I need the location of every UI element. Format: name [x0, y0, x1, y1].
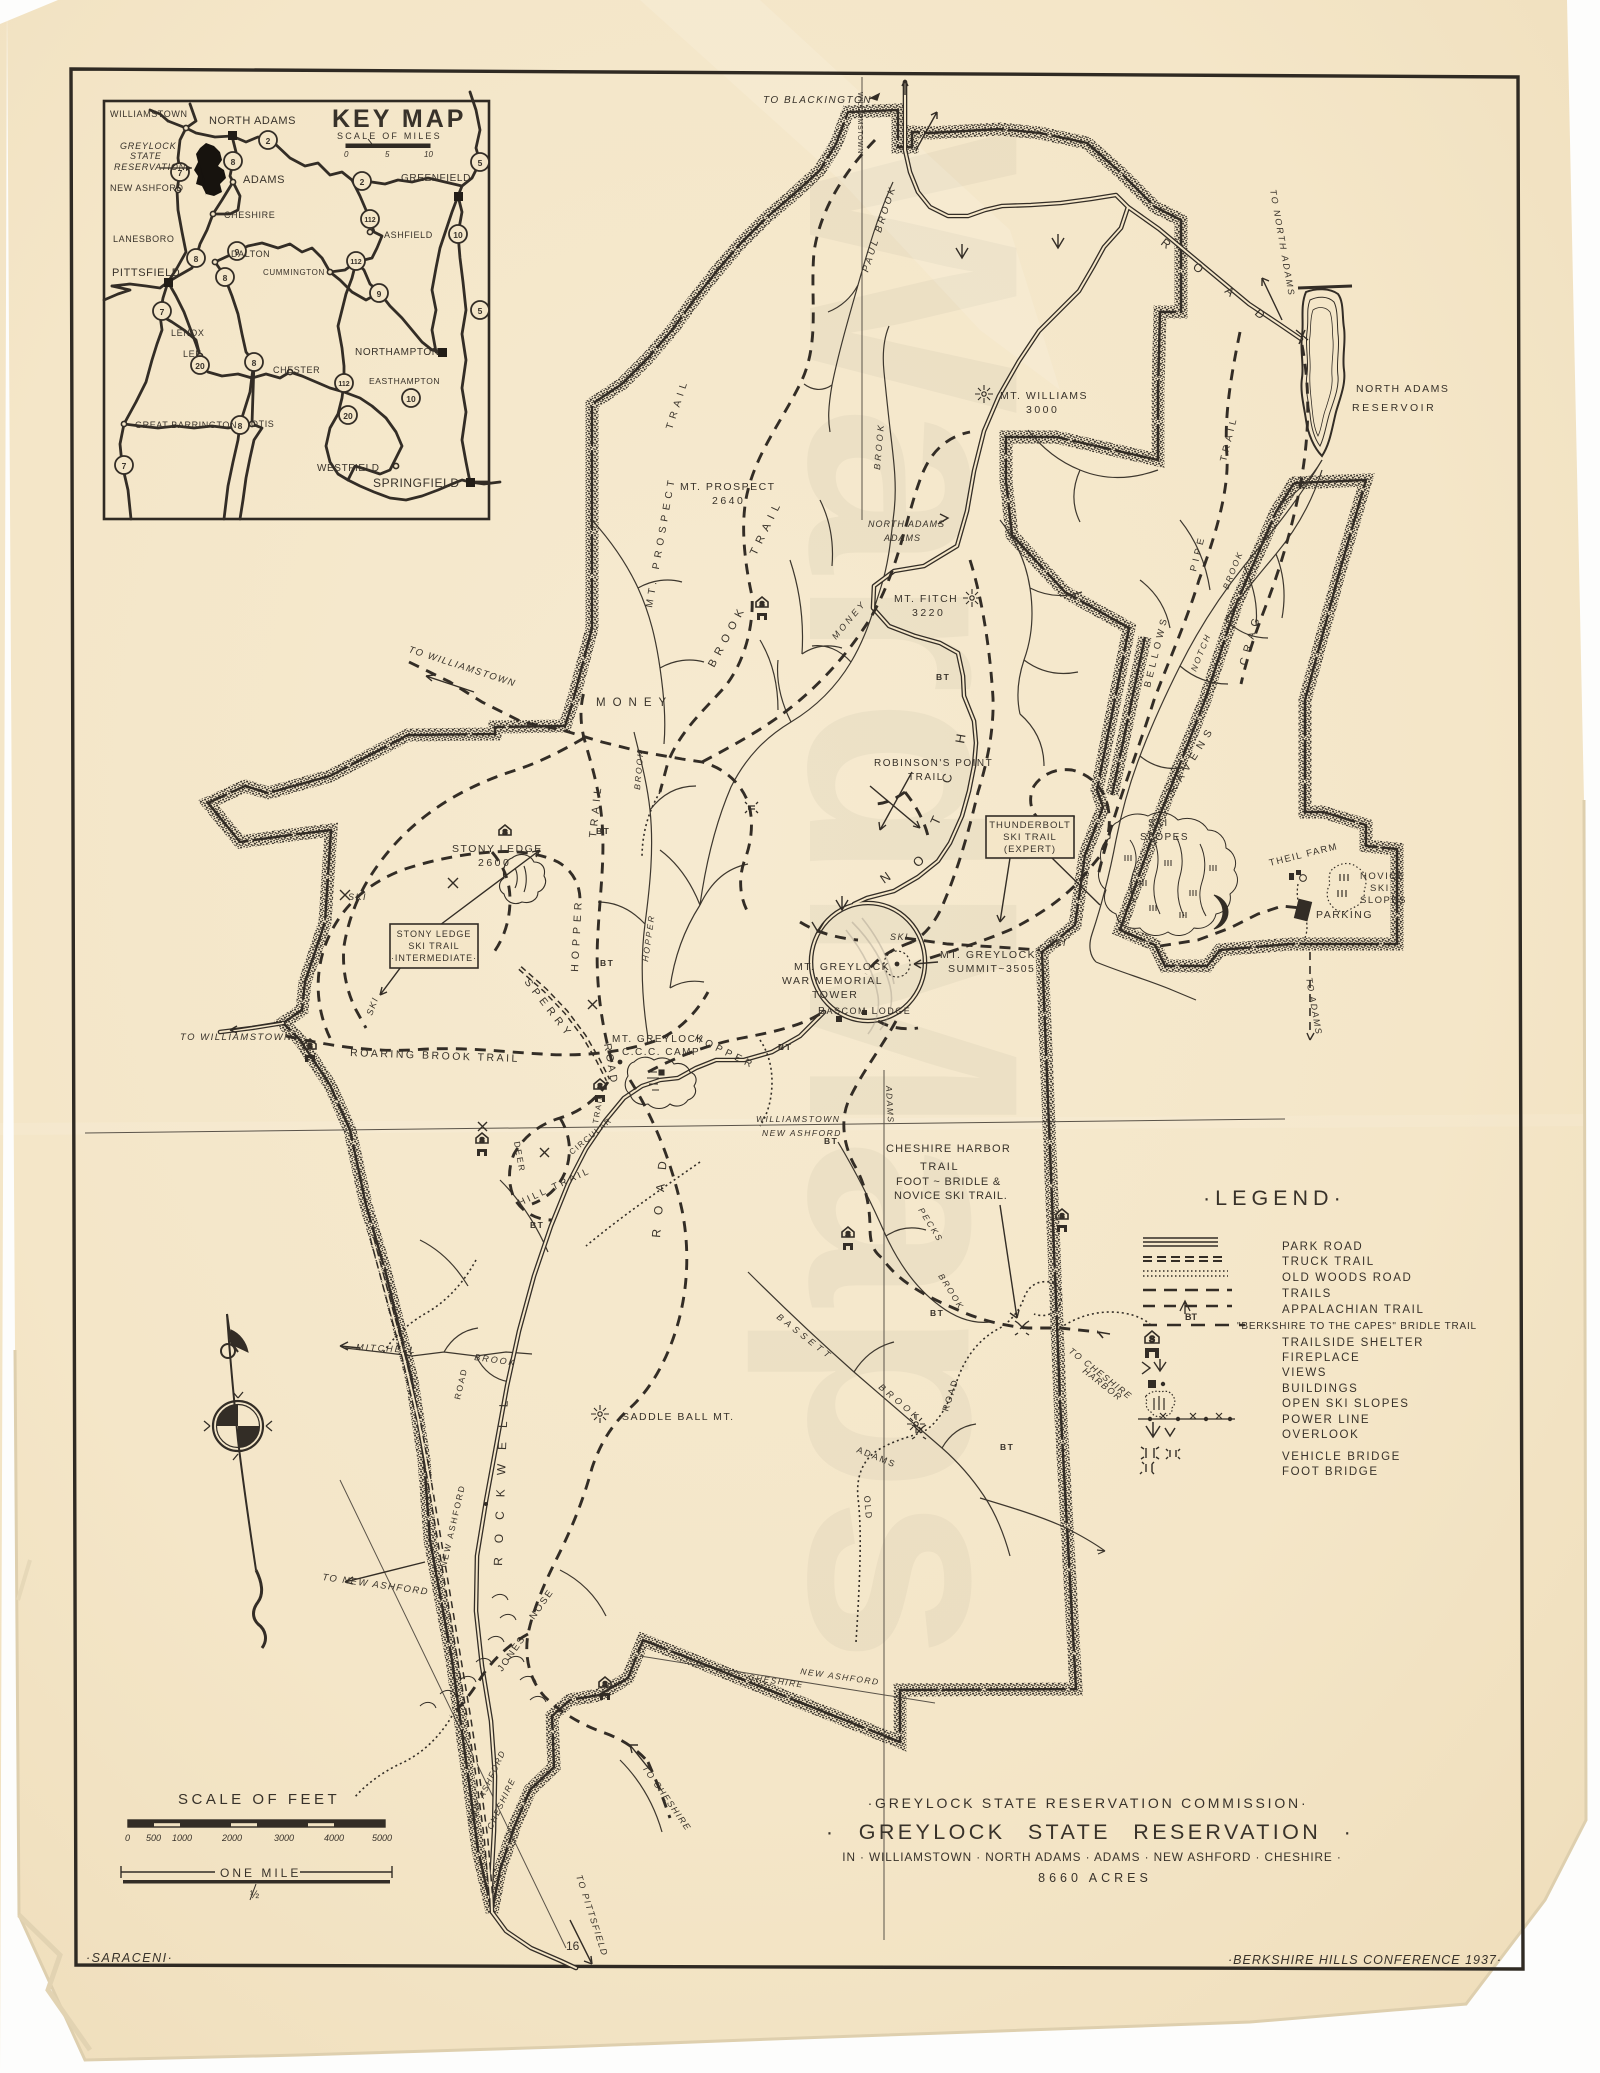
- svg-text:GREAT BARRINGTON: GREAT BARRINGTON: [135, 420, 237, 430]
- svg-text:S: S: [760, 602, 765, 609]
- svg-text:·BERKSHIRE HILLS CONFERENCE 19: ·BERKSHIRE HILLS CONFERENCE 1937·: [1228, 1953, 1502, 1967]
- svg-text:ADAMS: ADAMS: [883, 533, 921, 543]
- svg-text:S: S: [1149, 1335, 1154, 1344]
- svg-text:S: S: [603, 1682, 608, 1689]
- svg-text:PITTSFIELD: PITTSFIELD: [112, 267, 180, 279]
- svg-text:SPRINGFIELD: SPRINGFIELD: [373, 476, 460, 490]
- svg-text:THUNDERBOLT: THUNDERBOLT: [989, 820, 1071, 831]
- svg-text:POWER LINE: POWER LINE: [1282, 1414, 1370, 1426]
- svg-text:4000: 4000: [324, 1833, 344, 1843]
- svg-text:1000: 1000: [172, 1833, 192, 1843]
- svg-text:EASTHAMPTON: EASTHAMPTON: [369, 376, 440, 386]
- svg-text:NORTHAMPTON: NORTHAMPTON: [355, 347, 440, 358]
- svg-text:NORTH ADAMS: NORTH ADAMS: [1356, 383, 1449, 395]
- svg-text:SCALE OF MILES: SCALE OF MILES: [337, 131, 442, 141]
- svg-text:TRUCK TRAIL: TRUCK TRAIL: [1282, 1256, 1375, 1268]
- svg-text:MT. FITCH: MT. FITCH: [894, 593, 958, 605]
- svg-text:SADDLE BALL MT.: SADDLE BALL MT.: [622, 1411, 735, 1423]
- svg-text:ASHFIELD: ASHFIELD: [384, 230, 433, 240]
- svg-text:TO BLACKINGTON: TO BLACKINGTON: [763, 95, 872, 106]
- svg-text:SKI: SKI: [1148, 818, 1169, 829]
- svg-text:3000: 3000: [274, 1833, 294, 1843]
- svg-text:BT: BT: [530, 1220, 544, 1230]
- svg-text:8: 8: [238, 421, 243, 431]
- svg-text:STONY LEDGE: STONY LEDGE: [452, 843, 543, 855]
- svg-text:500: 500: [146, 1833, 161, 1843]
- svg-text:MT. WILLIAMS: MT. WILLIAMS: [1000, 390, 1088, 402]
- svg-text:8: 8: [231, 157, 236, 167]
- svg-text:"BERKSHIRE TO THE CAPES" BRIDL: "BERKSHIRE TO THE CAPES" BRIDLE TRAIL: [1237, 1321, 1477, 1332]
- svg-text:S: S: [1060, 1214, 1065, 1221]
- svg-text:ADAMS: ADAMS: [884, 1085, 896, 1124]
- svg-text:VIEWS: VIEWS: [1282, 1367, 1327, 1379]
- svg-text:TRAIL: TRAIL: [920, 1161, 959, 1173]
- svg-text:RESERVATION: RESERVATION: [114, 162, 186, 172]
- svg-text:WILLIAMSTOWN: WILLIAMSTOWN: [110, 109, 188, 119]
- svg-text:NORTH ADAMS: NORTH ADAMS: [868, 519, 945, 529]
- svg-text:2: 2: [360, 177, 365, 187]
- svg-text:MONEY: MONEY: [596, 697, 673, 709]
- svg-text:C.C.C. CAMP: C.C.C. CAMP: [622, 1047, 700, 1058]
- svg-text:IN · WILLIAMSTOWN · NORTH ADAM: IN · WILLIAMSTOWN · NORTH ADAMS · ADAMS …: [842, 1850, 1341, 1864]
- svg-text:112: 112: [350, 259, 361, 266]
- svg-text:BT: BT: [596, 826, 610, 836]
- svg-text:CHESTER: CHESTER: [273, 365, 320, 375]
- svg-text:STONY LEDGE: STONY LEDGE: [397, 929, 472, 939]
- svg-text:2600: 2600: [478, 857, 511, 869]
- svg-text:TOWER: TOWER: [812, 989, 858, 1001]
- svg-text:BUILDINGS: BUILDINGS: [1282, 1383, 1358, 1395]
- svg-text:8: 8: [194, 254, 199, 264]
- svg-text:OTIS: OTIS: [251, 419, 274, 429]
- svg-text:NEW ASHFORD: NEW ASHFORD: [110, 183, 184, 193]
- svg-text:9: 9: [377, 289, 382, 299]
- svg-text:8: 8: [252, 358, 257, 368]
- svg-text:MT. PROSPECT: MT. PROSPECT: [680, 481, 776, 493]
- svg-text:BT: BT: [824, 1136, 838, 1146]
- svg-text:TRAILSIDE SHELTER: TRAILSIDE SHELTER: [1282, 1337, 1424, 1349]
- svg-text:5: 5: [478, 158, 483, 168]
- svg-text:S: S: [308, 1044, 313, 1051]
- svg-text:5: 5: [478, 306, 483, 316]
- svg-text:PARKING: PARKING: [1316, 909, 1373, 921]
- svg-text:SKI TRAIL: SKI TRAIL: [1003, 832, 1057, 843]
- svg-text:SCALE OF FEET: SCALE OF FEET: [178, 1791, 340, 1808]
- svg-text:OLD WOODS ROAD: OLD WOODS ROAD: [1282, 1272, 1412, 1284]
- svg-text:·INTERMEDIATE·: ·INTERMEDIATE·: [391, 953, 477, 963]
- svg-text:LENOX: LENOX: [171, 328, 205, 338]
- svg-text:TRAILS: TRAILS: [1282, 1288, 1332, 1300]
- svg-text:WILLIAMSTOWN: WILLIAMSTOWN: [756, 1114, 840, 1124]
- svg-text:·GREYLOCK STATE RESERVATION CO: ·GREYLOCK STATE RESERVATION COMMISSION·: [868, 1795, 1309, 1811]
- svg-text:SLOPES: SLOPES: [1360, 895, 1407, 906]
- svg-text:ROBINSON'S POINT: ROBINSON'S POINT: [874, 758, 993, 769]
- svg-text:112: 112: [338, 381, 349, 388]
- svg-text:APPALACHIAN TRAIL: APPALACHIAN TRAIL: [1282, 1304, 1424, 1316]
- svg-text:OVERLOOK: OVERLOOK: [1282, 1429, 1359, 1441]
- svg-text:NORTH ADAMS: NORTH ADAMS: [209, 115, 296, 127]
- svg-text:OPEN SKI SLOPES: OPEN SKI SLOPES: [1282, 1398, 1410, 1410]
- svg-text:BT: BT: [778, 1042, 792, 1052]
- svg-text:GREENFIELD: GREENFIELD: [401, 173, 471, 184]
- svg-text:FOOT BRIDGE: FOOT BRIDGE: [1282, 1466, 1379, 1478]
- svg-text:BT: BT: [930, 1308, 944, 1318]
- svg-text:KEY MAP: KEY MAP: [332, 105, 466, 133]
- svg-text:8660 ACRES: 8660 ACRES: [1038, 1871, 1152, 1885]
- svg-text:BT: BT: [600, 958, 614, 968]
- svg-text:S: S: [480, 1138, 485, 1145]
- svg-text:10: 10: [406, 394, 416, 404]
- svg-text:NOVICE SKI TRAIL.: NOVICE SKI TRAIL.: [894, 1190, 1008, 1202]
- svg-text:20: 20: [343, 411, 353, 421]
- svg-text:DALTON: DALTON: [231, 249, 270, 259]
- svg-text:2000: 2000: [221, 1833, 242, 1843]
- svg-text:PARK ROAD: PARK ROAD: [1282, 1241, 1363, 1253]
- svg-text:SKI: SKI: [890, 932, 909, 942]
- svg-text:ADAMS: ADAMS: [243, 174, 285, 186]
- svg-text:SKI: SKI: [348, 892, 367, 902]
- svg-text:WAR MEMORIAL: WAR MEMORIAL: [782, 975, 883, 987]
- svg-text:· GREYLOCK STATE RESERVATION ·: · GREYLOCK STATE RESERVATION ·: [826, 1820, 1354, 1844]
- svg-text:5000: 5000: [372, 1833, 392, 1843]
- svg-text:WESTFIELD: WESTFIELD: [317, 463, 380, 474]
- svg-text:16: 16: [566, 1939, 580, 1953]
- svg-text:20: 20: [195, 361, 205, 371]
- svg-text:MT. GREYLOCK: MT. GREYLOCK: [940, 949, 1036, 961]
- svg-text:SUMMIT~3505: SUMMIT~3505: [948, 963, 1035, 975]
- svg-text:BASCOM LODGE: BASCOM LODGE: [818, 1005, 911, 1017]
- svg-text:BT: BT: [936, 672, 950, 682]
- svg-text:FOOT ~ BRIDLE &: FOOT ~ BRIDLE &: [896, 1176, 1001, 1188]
- svg-text:0: 0: [125, 1833, 130, 1843]
- svg-text:7: 7: [122, 461, 127, 471]
- svg-text:SKI: SKI: [1370, 883, 1390, 894]
- svg-text:CHESHIRE HARBOR: CHESHIRE HARBOR: [886, 1143, 1011, 1155]
- svg-text:LANESBORO: LANESBORO: [113, 234, 174, 244]
- svg-text:TO WILLIAMSTOWN: TO WILLIAMSTOWN: [180, 1032, 292, 1043]
- svg-text:MT. GREYLOCK: MT. GREYLOCK: [794, 961, 890, 973]
- svg-text:5: 5: [385, 150, 390, 159]
- svg-text:10: 10: [453, 230, 463, 240]
- svg-text:3220: 3220: [912, 607, 945, 619]
- svg-text:2640: 2640: [712, 495, 745, 507]
- svg-text:NOVICE: NOVICE: [1360, 871, 1405, 882]
- svg-text:RESERVOIR: RESERVOIR: [1352, 402, 1436, 414]
- svg-text:3000: 3000: [1026, 404, 1059, 416]
- svg-text:CUMMINGTON: CUMMINGTON: [263, 268, 325, 277]
- svg-text:VEHICLE BRIDGE: VEHICLE BRIDGE: [1282, 1451, 1401, 1463]
- svg-text:BT: BT: [1185, 1312, 1197, 1322]
- svg-text:MT. GREYLOCK: MT. GREYLOCK: [612, 1034, 704, 1045]
- svg-text:STATE: STATE: [130, 151, 162, 161]
- svg-text:S: S: [598, 1084, 603, 1091]
- svg-text:S: S: [846, 1232, 851, 1239]
- svg-text:S: S: [503, 830, 508, 837]
- svg-text:0: 0: [344, 150, 349, 159]
- svg-text:LEE: LEE: [183, 349, 202, 359]
- svg-text:7: 7: [160, 307, 165, 317]
- svg-text:SKI TRAIL: SKI TRAIL: [408, 941, 459, 951]
- svg-text:ONE MILE: ONE MILE: [220, 1866, 301, 1880]
- svg-text:BT: BT: [1000, 1442, 1014, 1452]
- svg-text:2: 2: [266, 136, 271, 146]
- svg-text:·SARACENI·: ·SARACENI·: [86, 1951, 173, 1965]
- svg-text:GREYLOCK: GREYLOCK: [120, 141, 177, 151]
- svg-text:WILLIAMSTOWN: WILLIAMSTOWN: [856, 92, 863, 154]
- svg-text:(EXPERT): (EXPERT): [1004, 844, 1056, 855]
- svg-text:·LEGEND·: ·LEGEND·: [1203, 1186, 1346, 1210]
- svg-text:112: 112: [364, 217, 375, 224]
- svg-text:10: 10: [424, 150, 433, 159]
- svg-text:8: 8: [223, 273, 228, 283]
- svg-text:SKI: SKI: [1048, 938, 1067, 948]
- svg-text:OLD: OLD: [862, 1495, 874, 1520]
- svg-text:CHESHIRE: CHESHIRE: [224, 210, 275, 220]
- svg-text:FIREPLACE: FIREPLACE: [1282, 1352, 1360, 1364]
- svg-text:SLOPES: SLOPES: [1140, 832, 1189, 843]
